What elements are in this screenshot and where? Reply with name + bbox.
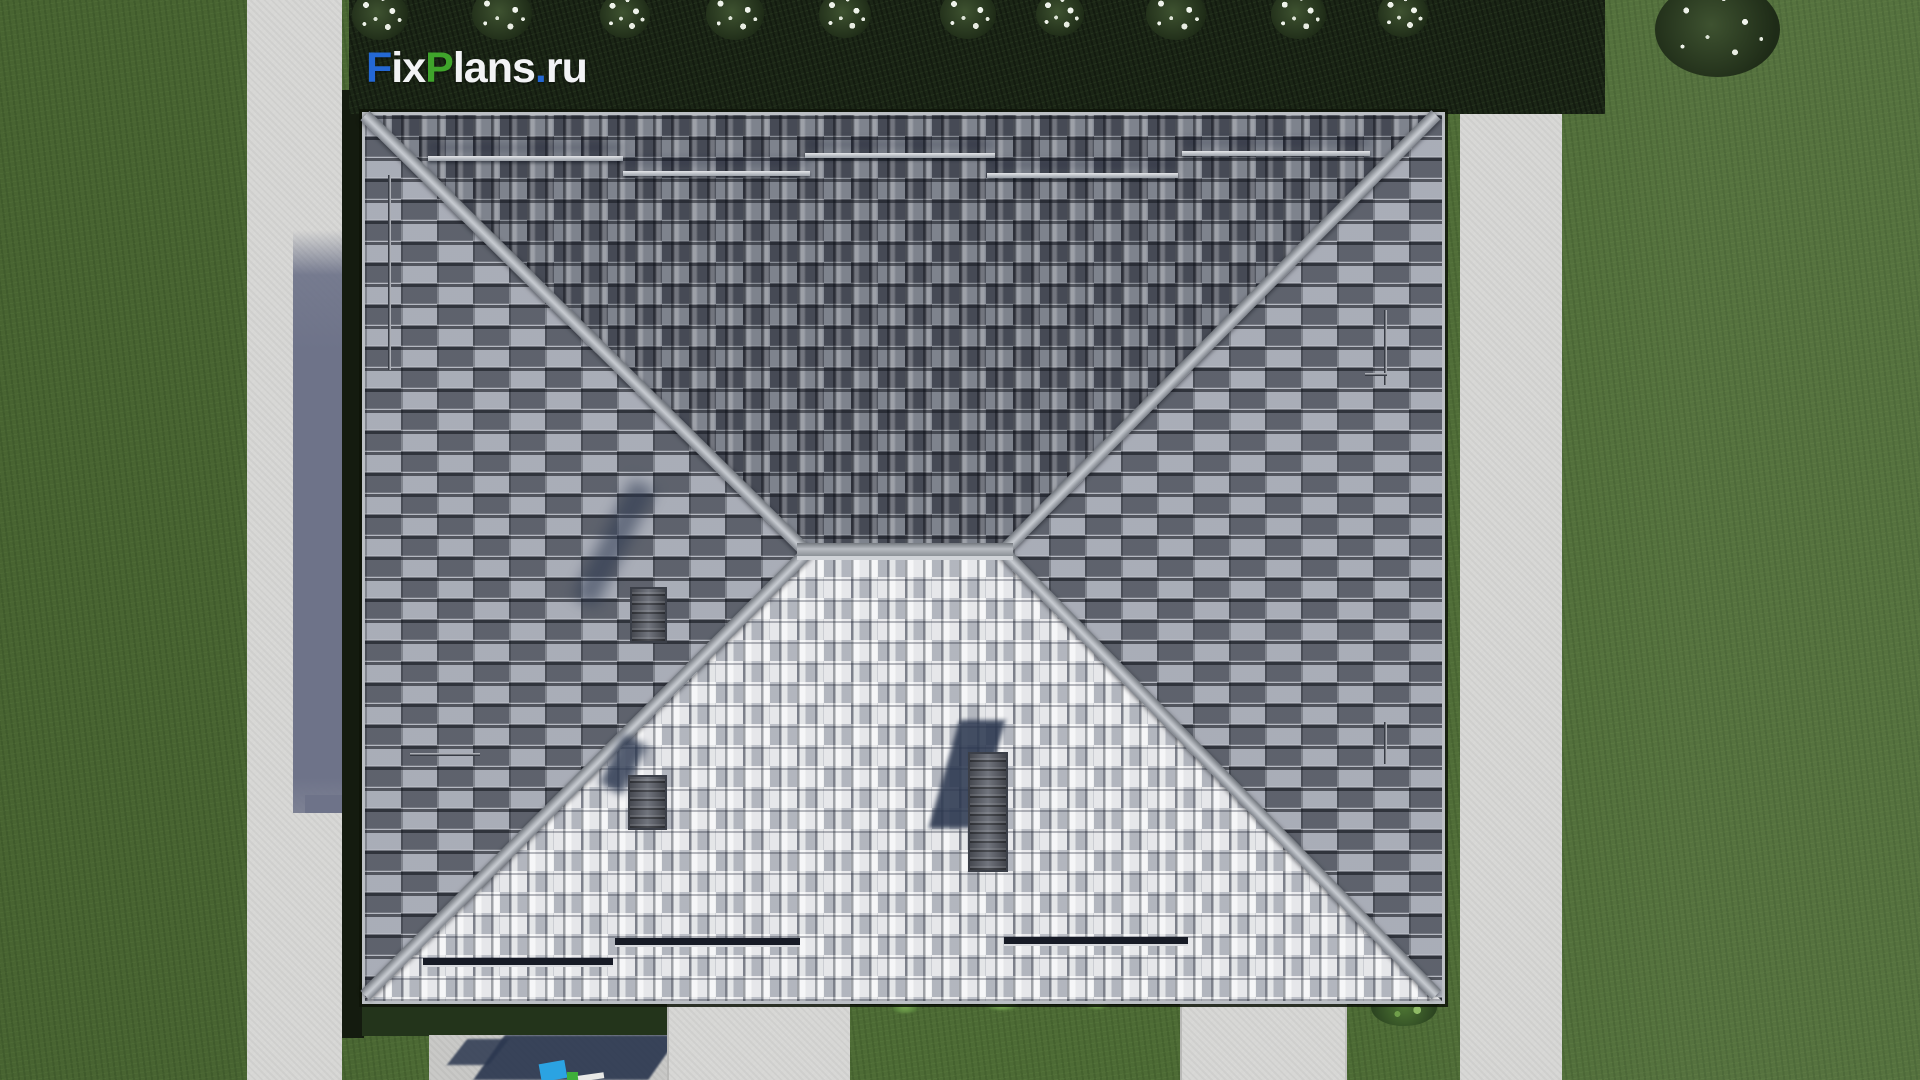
flashing-line: [1384, 722, 1387, 764]
chimney-south-small: [628, 775, 667, 830]
snow-guard: [1182, 151, 1370, 156]
snow-guard: [987, 173, 1178, 178]
flashing-line: [1365, 373, 1387, 376]
chimney-south-large: [968, 752, 1008, 872]
snow-guard: [805, 153, 995, 158]
watermark-logo: FixPlans.ru: [366, 47, 587, 90]
patio: [429, 1035, 667, 1080]
watermark-segment: .: [535, 44, 546, 92]
roof: [362, 112, 1445, 1004]
sidewalk-left-building-shadow: [293, 230, 342, 813]
flashing-line: [410, 753, 480, 756]
watermark-segment: ru: [546, 44, 587, 92]
ridge: [797, 543, 1013, 560]
watermark-segment: P: [425, 44, 453, 92]
flashing-line: [388, 175, 391, 370]
eave-bar: [423, 958, 613, 967]
watermark-segment: ix: [391, 44, 425, 92]
patio-cyan-object: [539, 1060, 568, 1080]
snow-guard: [623, 171, 810, 176]
walkway-bottom-left: [667, 995, 850, 1080]
watermark-segment: lans: [453, 44, 535, 92]
sidewalk-left-shadow-step: [305, 795, 342, 813]
chimney-west: [630, 587, 667, 643]
snow-guard: [428, 156, 623, 161]
patio-green-object: [567, 1072, 578, 1080]
watermark-segment: F: [366, 44, 391, 92]
aerial-scene: FixPlans.ru: [0, 0, 1920, 1080]
walkway-bottom-right: [1180, 995, 1347, 1080]
flowering-bush-corner: [1655, 0, 1780, 77]
house-side-shadow-strip: [342, 90, 364, 1038]
eave-bar: [1004, 937, 1188, 946]
sidewalk-right: [1460, 88, 1562, 1080]
eave-bar: [615, 938, 800, 947]
